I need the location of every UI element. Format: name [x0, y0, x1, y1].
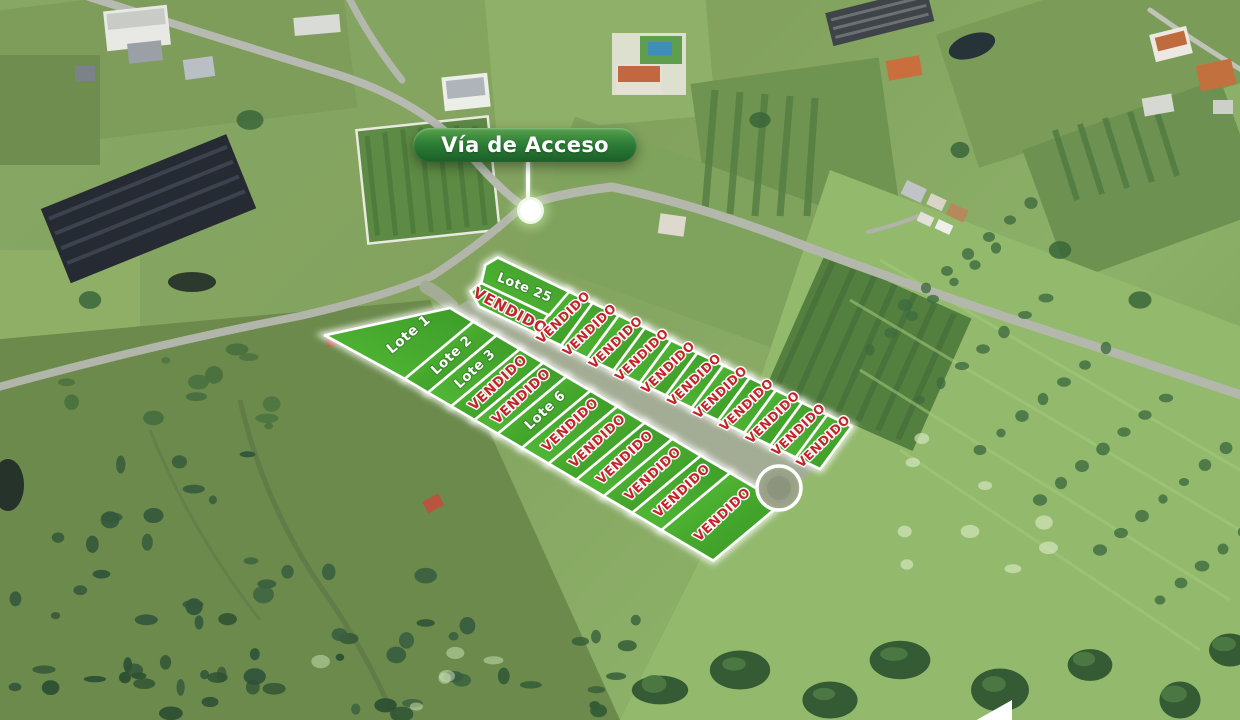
tree — [239, 353, 259, 361]
tree — [172, 455, 187, 468]
tree — [1195, 561, 1210, 572]
tree — [996, 429, 1005, 438]
tree — [962, 248, 974, 260]
tree — [336, 654, 345, 661]
tree — [1199, 459, 1211, 471]
terracotta-roof — [618, 66, 660, 82]
tree — [520, 681, 542, 688]
tree — [240, 451, 256, 457]
tree — [185, 598, 202, 615]
tree — [618, 640, 637, 651]
tree — [991, 242, 1001, 253]
tree — [974, 445, 987, 455]
estate-with-pool — [612, 33, 686, 95]
tree — [898, 526, 912, 538]
tree — [936, 377, 945, 389]
tree — [386, 647, 406, 664]
house — [886, 55, 923, 81]
tree — [101, 511, 120, 528]
access-road-badge: Vía de Acceso — [413, 128, 637, 162]
tree — [132, 672, 147, 679]
tree — [813, 688, 835, 700]
tree — [160, 655, 171, 670]
tree — [1212, 637, 1236, 652]
tree — [722, 657, 746, 670]
tree — [969, 260, 980, 270]
tree — [281, 565, 293, 579]
tree — [885, 328, 898, 338]
tree — [93, 570, 111, 579]
tree — [1114, 528, 1128, 538]
tree — [1117, 427, 1130, 436]
tree — [64, 394, 79, 410]
tree — [710, 651, 770, 690]
tree — [1005, 564, 1022, 573]
tree — [927, 295, 939, 304]
aerial-subdivision-photo: Lote 1Lote 2Lote 3VENDIDOVENDIDOLote 6VE… — [0, 0, 1240, 720]
tree — [1024, 197, 1037, 209]
tree — [410, 702, 423, 710]
tree — [133, 678, 155, 689]
tree — [205, 366, 223, 384]
tree — [135, 614, 158, 625]
tree — [399, 632, 414, 648]
tree — [374, 698, 397, 712]
tree — [417, 619, 435, 627]
tree — [452, 674, 471, 687]
tree — [880, 647, 908, 661]
tree — [143, 411, 164, 426]
tree — [161, 357, 170, 364]
tree — [449, 632, 459, 641]
tree — [1101, 342, 1112, 354]
tree — [52, 532, 65, 542]
tree — [590, 704, 607, 717]
tree — [79, 291, 101, 309]
tree — [1220, 442, 1233, 454]
tree — [255, 414, 278, 423]
tree — [1057, 377, 1071, 387]
tree — [998, 326, 1009, 339]
tree — [142, 534, 153, 551]
tree — [263, 683, 286, 695]
tree — [84, 676, 106, 682]
tree — [250, 648, 260, 660]
tree — [32, 665, 55, 673]
tree — [1155, 595, 1166, 604]
building — [127, 40, 163, 63]
tree — [183, 485, 205, 494]
tree — [1038, 393, 1048, 405]
tree — [951, 142, 970, 158]
tree — [588, 686, 606, 693]
tree — [237, 110, 264, 130]
tree — [641, 675, 666, 693]
tree — [1158, 494, 1167, 503]
tree — [906, 311, 918, 321]
building — [75, 66, 95, 81]
tree — [865, 344, 874, 356]
tree — [1033, 494, 1047, 505]
tree — [1004, 215, 1016, 224]
tree — [1049, 241, 1071, 259]
tree — [1073, 652, 1095, 667]
tree — [606, 672, 626, 680]
tree — [898, 299, 912, 311]
greenhouses — [825, 0, 934, 46]
tree — [941, 266, 953, 276]
house — [441, 73, 490, 112]
tree — [119, 672, 131, 683]
tree — [901, 559, 914, 569]
tree — [73, 585, 87, 595]
tree — [253, 586, 274, 604]
tree — [86, 536, 99, 553]
tree — [1075, 460, 1089, 472]
tree — [1015, 410, 1029, 422]
road — [348, 0, 402, 80]
tree — [802, 681, 857, 718]
pool — [648, 42, 672, 55]
tree — [1135, 510, 1149, 522]
tree — [51, 612, 60, 619]
tree — [218, 613, 237, 625]
tree — [1096, 443, 1110, 456]
tree — [1018, 311, 1032, 319]
tree — [572, 637, 589, 646]
tree — [143, 508, 163, 523]
tree — [202, 697, 219, 707]
tree — [961, 525, 980, 538]
pond — [168, 272, 216, 292]
tree — [322, 564, 335, 581]
tree — [116, 456, 125, 474]
tree — [1218, 543, 1229, 554]
tree — [1179, 478, 1189, 486]
tree — [311, 655, 330, 668]
tree — [176, 679, 184, 696]
tree — [159, 707, 183, 720]
tree — [949, 278, 958, 286]
tree — [982, 676, 1006, 692]
tree — [1093, 544, 1107, 555]
tree — [955, 362, 969, 370]
tree — [414, 568, 437, 584]
tree — [123, 657, 132, 672]
tree — [1079, 360, 1091, 369]
tree — [332, 628, 348, 641]
tree — [1039, 541, 1058, 554]
tree — [446, 647, 464, 659]
tree — [906, 458, 920, 468]
tree — [264, 422, 273, 429]
tree — [921, 283, 931, 294]
tree — [749, 112, 770, 128]
tree — [58, 378, 75, 386]
building — [183, 56, 215, 80]
tree — [631, 615, 641, 626]
tree — [915, 396, 925, 404]
access-point-marker — [517, 197, 544, 224]
tree — [209, 495, 217, 504]
tree — [460, 617, 476, 634]
access-road-badge-label: Vía de Acceso — [441, 133, 609, 157]
tree — [351, 704, 360, 715]
aerial-scene: Lote 1Lote 2Lote 3VENDIDOVENDIDOLote 6VE… — [0, 0, 1240, 720]
tree — [1055, 477, 1067, 489]
tree — [483, 656, 503, 664]
tree — [244, 557, 259, 564]
tree — [591, 630, 601, 644]
tree — [1138, 410, 1151, 420]
cul-de-sac — [757, 466, 801, 510]
tree — [1039, 293, 1054, 302]
tree — [186, 392, 207, 401]
tree — [1128, 291, 1151, 308]
tree — [439, 670, 455, 682]
tree — [1175, 578, 1188, 589]
house — [658, 213, 687, 236]
tree — [1035, 515, 1053, 529]
tree — [207, 672, 227, 683]
tree — [978, 481, 992, 490]
tree — [42, 680, 60, 695]
tree — [9, 683, 22, 692]
badge-connector-line — [526, 161, 530, 199]
tree — [195, 615, 204, 629]
tree — [1159, 394, 1173, 403]
tree — [498, 668, 510, 685]
tree — [1161, 685, 1187, 702]
tree — [983, 232, 995, 242]
tree — [263, 396, 281, 412]
tree — [10, 591, 22, 606]
tree — [914, 433, 929, 444]
tree — [976, 344, 990, 354]
tree — [246, 680, 260, 695]
